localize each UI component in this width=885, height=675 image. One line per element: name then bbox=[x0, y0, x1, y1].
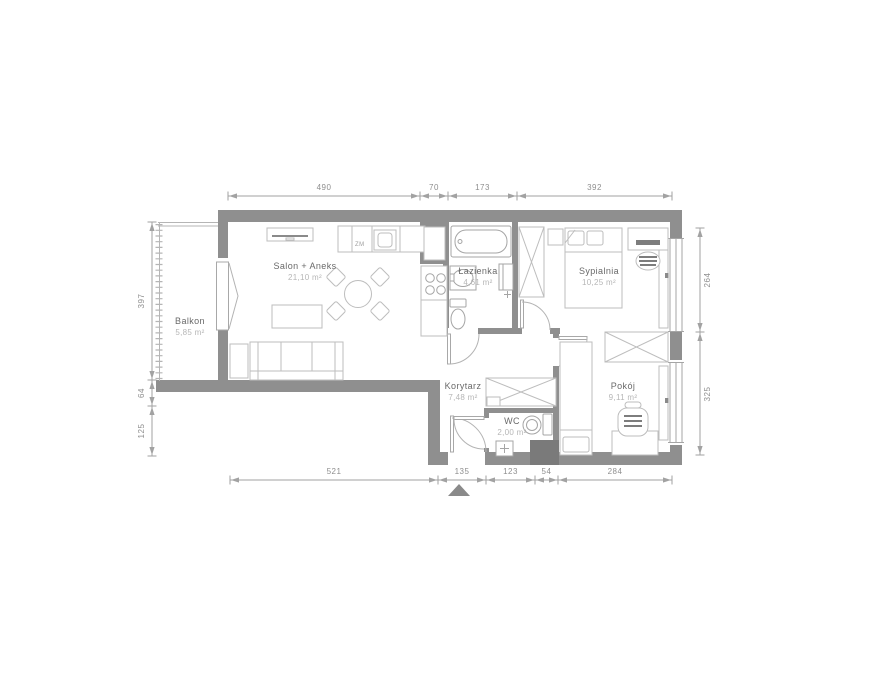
pillow bbox=[568, 231, 584, 245]
dining-chair bbox=[326, 301, 346, 321]
wall-shaft bbox=[530, 440, 559, 465]
room-name: Balkon bbox=[175, 316, 205, 328]
bathtub-faucet-icon bbox=[458, 240, 462, 244]
wall-salon-bottom bbox=[156, 380, 440, 392]
room-area: 9,11 m² bbox=[609, 393, 638, 403]
dimension-arrow bbox=[449, 193, 457, 198]
door-leaf bbox=[559, 337, 587, 340]
fridge bbox=[424, 227, 445, 260]
wall-entry-connector bbox=[428, 392, 440, 454]
dimension-arrow bbox=[508, 193, 516, 198]
bathroom-door bbox=[448, 334, 480, 364]
door-leaf bbox=[454, 417, 484, 420]
door-swing-arc bbox=[522, 302, 550, 330]
side-table bbox=[230, 344, 248, 378]
washbasin-tap-icon bbox=[450, 274, 454, 281]
dimension-arrow bbox=[439, 193, 447, 198]
sofa bbox=[250, 342, 343, 380]
shoe-bench bbox=[487, 397, 500, 406]
dimension-label: 521 bbox=[316, 466, 352, 478]
door-swing-mark bbox=[229, 263, 238, 329]
toilet-tank bbox=[450, 299, 466, 307]
dimension-label: 125 bbox=[136, 413, 148, 449]
window-casement bbox=[659, 242, 668, 328]
dimension-arrow bbox=[697, 446, 702, 454]
entrance-door bbox=[451, 416, 487, 452]
dimension-arrow bbox=[477, 477, 485, 482]
room-name: Pokój bbox=[609, 381, 638, 393]
furniture-korytarz bbox=[486, 378, 556, 406]
dimension-arrow bbox=[149, 447, 154, 455]
dimension-arrow bbox=[663, 477, 671, 482]
dimension-arrow bbox=[231, 477, 239, 482]
toilet-tank bbox=[543, 414, 552, 435]
window-handle-icon bbox=[665, 398, 669, 403]
door-swing-arc bbox=[449, 334, 479, 364]
tv-stand bbox=[286, 238, 294, 240]
room-name: Korytarz bbox=[445, 381, 482, 393]
dimension-arrow bbox=[149, 223, 154, 231]
opening-bedroom-door bbox=[522, 328, 550, 334]
bedroom-window bbox=[659, 238, 684, 332]
dimension-arrow bbox=[526, 477, 534, 482]
dimension-arrow bbox=[518, 193, 526, 198]
dimension-label: 173 bbox=[465, 182, 501, 194]
dimension-label: 123 bbox=[493, 466, 529, 478]
window-handle-icon bbox=[665, 273, 669, 278]
dimension-arrow bbox=[149, 381, 154, 389]
door-leaf bbox=[448, 334, 451, 364]
dimension-label: 54 bbox=[529, 466, 565, 478]
wall-wc-top bbox=[484, 408, 559, 413]
dimension-arrow bbox=[229, 193, 237, 198]
wall-top bbox=[218, 210, 682, 222]
entrance-marker-icon bbox=[448, 484, 470, 496]
dimension-arrow bbox=[149, 407, 154, 415]
dining-chair bbox=[370, 267, 390, 287]
door-swing-arc bbox=[452, 418, 486, 452]
opening-pokoj-door bbox=[553, 338, 559, 366]
floor-plan: Balkon 5,85 m² Salon + Aneks 21,10 m² Ła… bbox=[0, 0, 885, 675]
room-label-sypialnia: Sypialnia 10,25 m² bbox=[579, 266, 619, 288]
room-label-salon: Salon + Aneks 21,10 m² bbox=[274, 261, 337, 283]
dimension-arrow bbox=[549, 477, 557, 482]
dimension-arrow bbox=[149, 397, 154, 405]
room-label-wc: WC 2,00 m² bbox=[497, 416, 526, 438]
dimension-label: 264 bbox=[702, 262, 714, 298]
dimension-label: 490 bbox=[306, 182, 342, 194]
room-name: Sypialnia bbox=[579, 266, 619, 278]
dimension-arrow bbox=[421, 193, 429, 198]
room-label-korytarz: Korytarz 7,48 m² bbox=[445, 381, 482, 403]
dimension-label: 135 bbox=[444, 466, 480, 478]
door-swing-arc bbox=[454, 419, 484, 449]
pillow bbox=[587, 231, 603, 245]
opening-bath-door bbox=[448, 328, 478, 334]
opening-entrance bbox=[448, 452, 485, 465]
dimension-label: 64 bbox=[136, 375, 148, 411]
dimension-arrow bbox=[697, 333, 702, 341]
room-area: 21,10 m² bbox=[274, 273, 337, 283]
dimension-arrow bbox=[487, 477, 495, 482]
dimension-label: 325 bbox=[702, 376, 714, 412]
balcony-outline bbox=[158, 222, 218, 381]
room-label-balkon: Balkon 5,85 m² bbox=[175, 316, 205, 338]
dining-table bbox=[345, 281, 372, 308]
bathroom-cabinet bbox=[499, 264, 513, 290]
monitor-icon bbox=[636, 240, 660, 245]
room-area: 2,00 m² bbox=[497, 428, 526, 438]
room-area: 10,25 m² bbox=[579, 278, 619, 288]
bedroom-door bbox=[521, 300, 551, 330]
pokoj-window bbox=[659, 360, 684, 445]
dimension-arrow bbox=[559, 477, 567, 482]
desk bbox=[628, 228, 668, 250]
pillow bbox=[563, 437, 589, 452]
dimension-arrow bbox=[439, 477, 447, 482]
dining-chair bbox=[370, 301, 390, 321]
room-area: 4,61 m² bbox=[458, 278, 497, 288]
coffee-table bbox=[272, 305, 322, 328]
floor-plan-drawing bbox=[0, 0, 885, 675]
dimension-label: 397 bbox=[136, 283, 148, 319]
room-area: 5,85 m² bbox=[175, 328, 205, 338]
dishwasher-label: ZM bbox=[355, 242, 365, 248]
room-area: 7,48 m² bbox=[445, 393, 482, 403]
dimension-arrow bbox=[697, 323, 702, 331]
kitchen-sink-basin bbox=[378, 233, 392, 247]
door-leaf bbox=[451, 416, 454, 452]
dimension-label: 70 bbox=[416, 182, 452, 194]
dimension-arrow bbox=[411, 193, 419, 198]
dimension-arrow bbox=[149, 371, 154, 379]
room-name: Łazienka bbox=[458, 266, 497, 278]
room-label-lazienka: Łazienka 4,61 m² bbox=[458, 266, 497, 288]
nightstand bbox=[548, 229, 563, 245]
dimension-arrow bbox=[429, 477, 437, 482]
dimension-label: 392 bbox=[577, 182, 613, 194]
room-label-pokoj: Pokój 9,11 m² bbox=[609, 381, 638, 403]
dimension-arrow bbox=[697, 229, 702, 237]
door-leaf bbox=[217, 262, 229, 330]
dimension-label: 284 bbox=[597, 466, 633, 478]
door-leaf bbox=[521, 300, 524, 328]
dimension-arrow bbox=[663, 193, 671, 198]
room-name: Salon + Aneks bbox=[274, 261, 337, 273]
toilet-bowl bbox=[451, 309, 465, 329]
bathtub-basin bbox=[455, 230, 507, 253]
balcony-door bbox=[217, 262, 239, 330]
dimension-arrow bbox=[536, 477, 544, 482]
room-name: WC bbox=[497, 416, 526, 428]
toilet-bowl-inner bbox=[527, 420, 538, 431]
